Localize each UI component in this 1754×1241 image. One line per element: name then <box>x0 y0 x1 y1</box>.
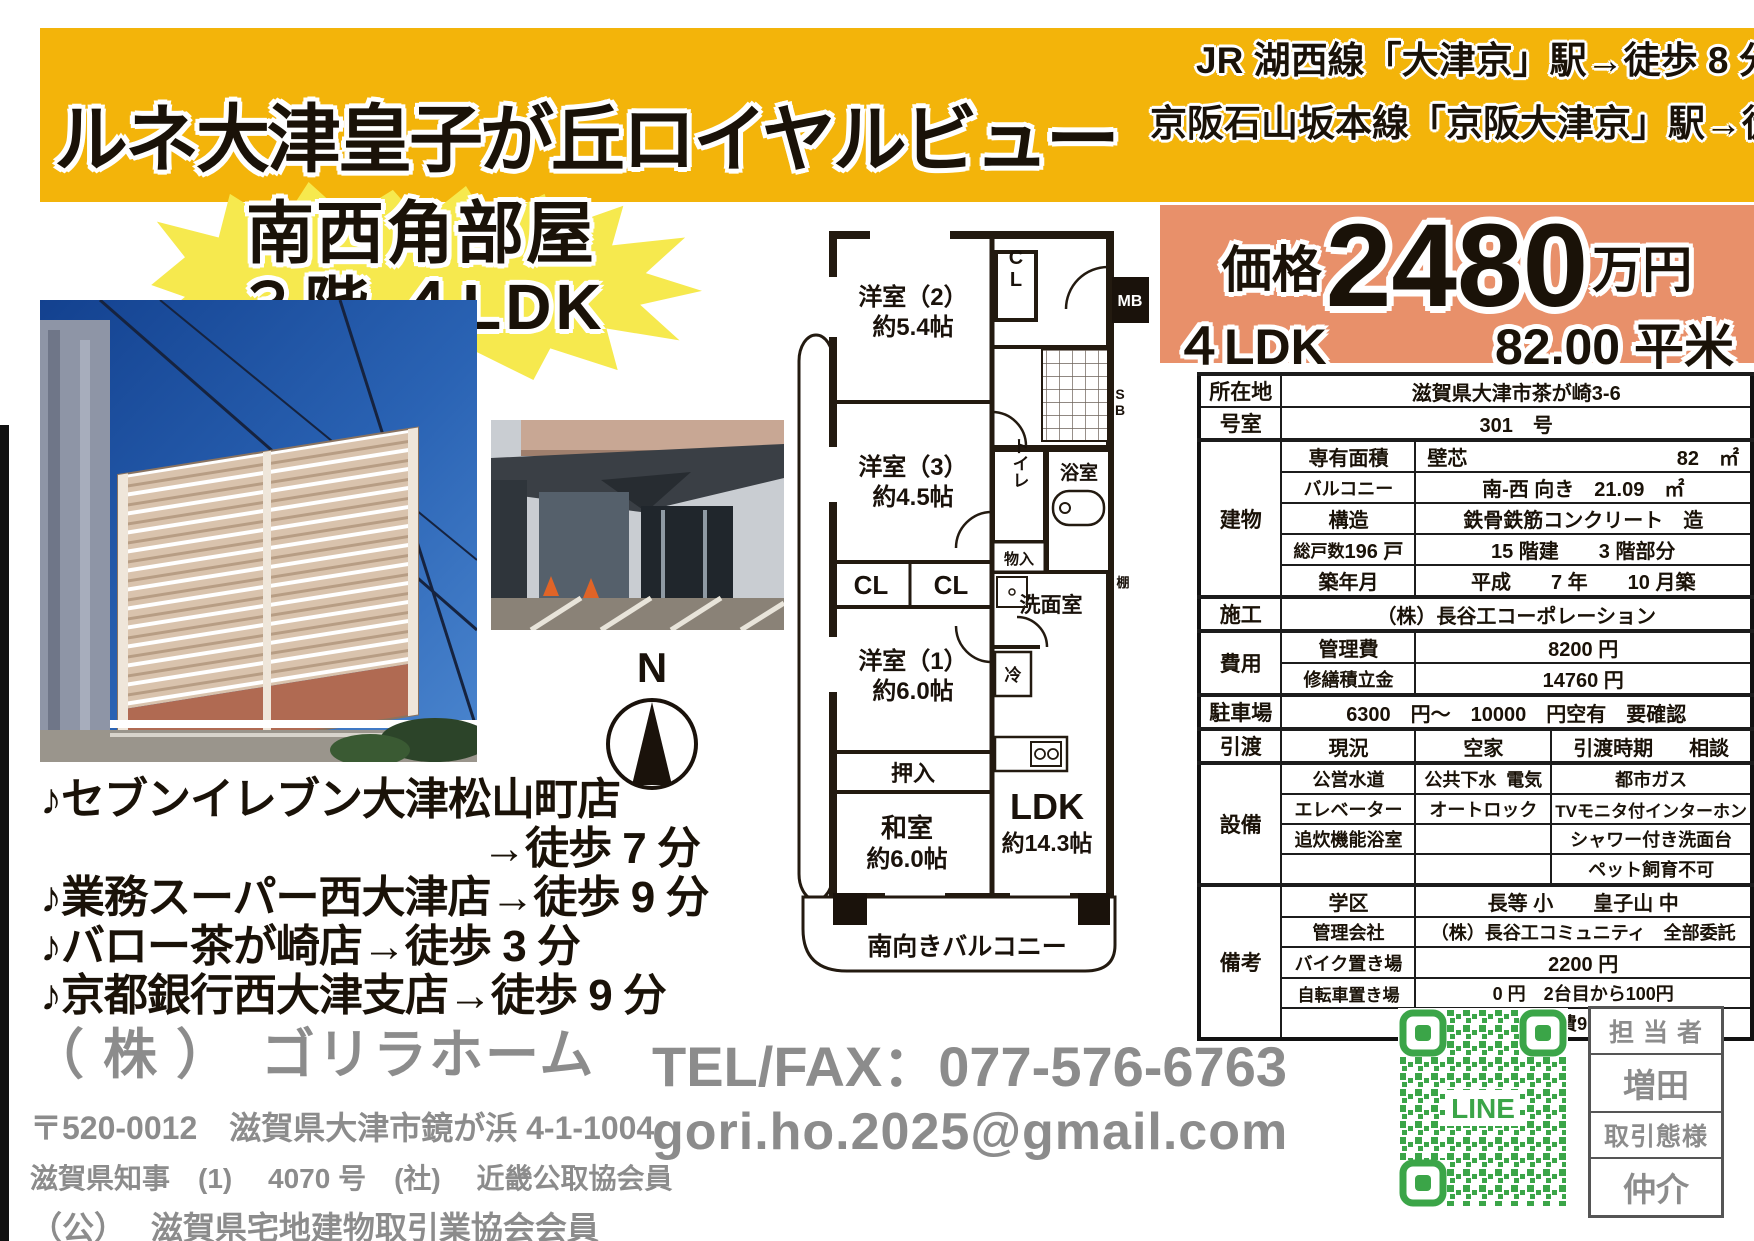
spec-sublabel: バイク置き場 <box>1281 947 1415 978</box>
access-line-jr: JR 湖西線「大津京」駅→徒歩 8 分 <box>1150 42 1754 79</box>
compass-icon: N <box>600 648 705 793</box>
amenity-item: ♪セブンイレブン大津松山町店 <box>40 778 740 822</box>
spec-value: オートロック <box>1415 794 1551 824</box>
genkan-tiles <box>1042 349 1108 441</box>
spec-value: 301 号 <box>1281 407 1752 440</box>
jiki-val: 相談 <box>1689 732 1729 761</box>
table-row: 追炊機能浴室 シャワー付き洗面台 <box>1199 824 1752 854</box>
room-size: 約4.5帖 <box>872 483 953 511</box>
page-edge-mark <box>0 425 9 1241</box>
tana-label: 棚 <box>1116 575 1129 590</box>
spec-label: 所在地 <box>1199 374 1281 407</box>
room-size: 約6.0帖 <box>866 845 947 873</box>
spec-sublabel: 総戸数196 戸 <box>1281 534 1415 565</box>
closet-top-label: CL <box>1005 247 1027 291</box>
table-row: 駐車場 6300 円～ 10000 円空有 要確認 <box>1199 695 1752 729</box>
table-row: 備考 学区 長等 小 皇子山 中 <box>1199 885 1752 917</box>
table-row: エレベーター オートロック TVモニタ付インターホン <box>1199 794 1752 824</box>
room-size: 約5.4帖 <box>872 313 953 341</box>
spec-label: 設備 <box>1199 763 1281 885</box>
email-address: gori.ho.2025@gmail.com <box>652 1102 1288 1162</box>
closet-label: CL <box>934 570 969 600</box>
spec-sublabel: 修繕積立金 <box>1281 663 1415 695</box>
building-photo-art <box>40 300 477 762</box>
senyu-val: 82 ㎡ <box>1677 442 1739 471</box>
spec-label: 引渡 <box>1199 729 1281 763</box>
compass-n-label: N <box>637 648 667 691</box>
company-block: （ 株 ） ゴリラホーム 〒520-0012 滋賀県大津市鏡が浜 4-1-100… <box>30 1010 690 1241</box>
room-size: 約6.0帖 <box>872 677 953 705</box>
spec-value: 都市ガス <box>1551 763 1752 794</box>
spec-value: エレベーター <box>1281 794 1415 824</box>
room-label: 洋室（1） <box>858 647 967 675</box>
balcony-label: 南向きバルコニー <box>867 932 1067 961</box>
header-banner: ルネ大津皇子が丘ロイヤルビュー JR 湖西線「大津京」駅→徒歩 8 分 京阪石山… <box>40 28 1754 202</box>
table-row: バイク置き場 2200 円 <box>1199 947 1752 978</box>
senyu-sub: 壁芯 <box>1427 442 1467 471</box>
area-value: 82.00 平米 <box>1495 307 1734 379</box>
price-unit: 万円 <box>1592 230 1692 302</box>
spec-label: 費用 <box>1199 631 1281 695</box>
spec-label: 建物 <box>1199 440 1281 597</box>
room-label: 洋室（3） <box>858 453 967 481</box>
line-qr-code: LINE <box>1398 1008 1568 1208</box>
spec-sublabel: 管理費 <box>1281 631 1415 663</box>
station-access: JR 湖西線「大津京」駅→徒歩 8 分 京阪石山坂本線「京阪大津京」駅→徒歩 8… <box>1150 42 1754 142</box>
setsubi-cell: 公共下水 <box>1424 766 1496 792</box>
mb-label: MB <box>1118 293 1143 310</box>
company-license2: （公） 滋賀県宅地建物取引業協会会員 <box>30 1203 690 1241</box>
table-row: 施工 （株）長谷工コーポレーション <box>1199 597 1752 631</box>
table-row: 設備 公営水道 公共下水電気 都市ガス <box>1199 763 1752 794</box>
spec-value: 6300 円～ 10000 円空有 要確認 <box>1281 695 1752 729</box>
table-row: 管理会社 （株）長谷工コミュニティ 全部委託 <box>1199 917 1752 947</box>
spec-value: 鉄骨鉄筋コンクリート 造 <box>1415 503 1752 534</box>
spec-table: 所在地 滋賀県大津市茶が崎3-6 号室 301 号 建物 専有面積 壁芯82 ㎡… <box>1197 372 1754 1041</box>
spec-sublabel: 専有面積 <box>1281 440 1415 472</box>
spec-sublabel <box>1281 1008 1415 1039</box>
spec-value: 平成 7 年 10 月築 <box>1415 565 1752 597</box>
oshiire-label: 押入 <box>891 761 935 786</box>
spec-label: 備考 <box>1199 885 1281 1039</box>
company-license1: 滋賀県知事 (1) 4070 号 (社) 近畿公取協会員 <box>30 1157 690 1197</box>
setsubi-cell: 電気 <box>1506 766 1542 792</box>
spec-value: ペット飼育不可 <box>1551 854 1752 885</box>
agent-name: 増田 <box>1591 1055 1721 1113</box>
access-line-keihan: 京阪石山坂本線「京阪大津京」駅→徒歩 8 分 <box>1150 105 1754 142</box>
amenity-item: ♪業務スーパー西大津店→徒歩 9 分 <box>40 876 740 920</box>
spec-value: シャワー付き洗面台 <box>1551 824 1752 854</box>
floorplan: CL MB SB トイレ 物入 浴室 洗面室 棚 冷 <box>695 207 1155 1002</box>
price-panel: 価格 2480 万円 ４LDK 82.00 平米 <box>1160 205 1754 363</box>
transaction-type-value: 仲介 <box>1591 1159 1721 1215</box>
soukosu-label: 総戸数 <box>1293 537 1344 562</box>
table-row: ペット飼育不可 <box>1199 854 1752 885</box>
table-row: 総戸数196 戸 15 階建 3 階部分 <box>1199 534 1752 565</box>
spec-label: 施工 <box>1199 597 1281 631</box>
spec-value: 滋賀県大津市茶が崎3-6 <box>1281 374 1752 407</box>
company-address: 〒520-0012 滋賀県大津市鏡が浜 4-1-1004 <box>30 1103 690 1149</box>
floorplan-drawing: CL MB SB トイレ 物入 浴室 洗面室 棚 冷 <box>695 207 1155 1002</box>
corridor-outline <box>799 335 833 900</box>
spec-sublabel: 構造 <box>1281 503 1415 534</box>
table-row: 自転車置き場 0 円 2台目から100円 <box>1199 978 1752 1008</box>
agent-box: 担 当 者 増田 取引態様 仲介 <box>1588 1006 1724 1218</box>
table-row: 構造 鉄骨鉄筋コンクリート 造 <box>1199 503 1752 534</box>
spec-value: TVモニタ付インターホン <box>1551 794 1752 824</box>
spec-value: 2200 円 <box>1415 947 1752 978</box>
layout-area-row: ４LDK 82.00 平米 <box>1174 307 1734 379</box>
compass: N <box>600 648 705 793</box>
spec-value <box>1415 854 1551 885</box>
table-row: 号室 301 号 <box>1199 407 1752 440</box>
spec-value: 南-西 向き 21.09 ㎡ <box>1415 472 1752 503</box>
sb-label: SB <box>1112 386 1128 418</box>
table-row: 建物 専有面積 壁芯82 ㎡ <box>1199 440 1752 472</box>
qr-art: LINE <box>1398 1008 1568 1208</box>
spec-sublabel: 学区 <box>1281 885 1415 917</box>
spec-value: 公共下水電気 <box>1415 763 1551 794</box>
spec-value <box>1281 854 1415 885</box>
spec-value: 0 円 2台目から100円 <box>1415 978 1752 1008</box>
phone-number: TEL/FAX：077-576-6763 <box>652 1022 1287 1103</box>
spec-label: 駐車場 <box>1199 695 1281 729</box>
company-name: （ 株 ） ゴリラホーム <box>30 1010 690 1089</box>
spec-value: 公営水道 <box>1281 763 1415 794</box>
table-row: 修繕積立金 14760 円 <box>1199 663 1752 695</box>
line-label: LINE <box>1451 1093 1515 1124</box>
spec-value: 長等 小 皇子山 中 <box>1415 885 1752 917</box>
soukosu-val: 196 戸 <box>1344 535 1403 564</box>
layout-value: ４LDK <box>1174 307 1327 379</box>
amenities-list: ♪セブンイレブン大津松山町店 →徒歩 7 分 ♪業務スーパー西大津店→徒歩 9 … <box>40 778 740 1023</box>
spec-value <box>1415 824 1551 854</box>
agent-label: 担 当 者 <box>1591 1009 1721 1055</box>
table-row: 引渡 現況 空家 引渡時期相談 <box>1199 729 1752 763</box>
spec-value: （株）長谷工コミュニティ 全部委託 <box>1415 917 1752 947</box>
transaction-type-label: 取引態様 <box>1591 1113 1721 1159</box>
room-label: 和室 <box>881 813 933 843</box>
real-estate-flyer: ルネ大津皇子が丘ロイヤルビュー JR 湖西線「大津京」駅→徒歩 8 分 京阪石山… <box>0 0 1754 1241</box>
table-row: 費用 管理費 8200 円 <box>1199 631 1752 663</box>
table-row: 所在地 滋賀県大津市茶が崎3-6 <box>1199 374 1752 407</box>
table-row: バルコニー 南-西 向き 21.09 ㎡ <box>1199 472 1752 503</box>
spec-sublabel: 現況 <box>1281 729 1415 763</box>
highlight-line1: 南西角部屋 <box>140 196 702 272</box>
spec-value: 引渡時期相談 <box>1551 729 1752 763</box>
amenity-item: →徒歩 7 分 <box>40 827 740 871</box>
jiki-label: 引渡時期 <box>1573 732 1653 761</box>
spec-value: 14760 円 <box>1415 663 1752 695</box>
spec-value: 15 階建 3 階部分 <box>1415 534 1752 565</box>
spec-sublabel: 管理会社 <box>1281 917 1415 947</box>
spec-value: 8200 円 <box>1415 631 1752 663</box>
property-title: ルネ大津皇子が丘ロイヤルビュー <box>54 80 1117 187</box>
closet-label: CL <box>854 570 889 600</box>
spec-sublabel: 自転車置き場 <box>1281 978 1415 1008</box>
spec-value: 追炊機能浴室 <box>1281 824 1415 854</box>
fridge-label: 冷 <box>1005 665 1022 685</box>
spec-sublabel: 築年月 <box>1281 565 1415 597</box>
bath-label: 浴室 <box>1060 461 1098 484</box>
building-photo <box>40 300 477 762</box>
amenity-item: ♪バロー茶が崎店→徒歩 3 分 <box>40 925 740 969</box>
spec-value: 空家 <box>1415 729 1551 763</box>
price-label: 価格 <box>1222 230 1322 302</box>
room-size: 約14.3帖 <box>1002 830 1093 856</box>
room-label: 洋室（2） <box>858 283 967 311</box>
spec-label: 号室 <box>1199 407 1281 440</box>
monoire-label: 物入 <box>1004 550 1034 568</box>
spec-value: 壁芯82 ㎡ <box>1415 440 1752 472</box>
senmen-label: 洗面室 <box>1020 593 1083 617</box>
table-row: 築年月 平成 7 年 10 月築 <box>1199 565 1752 597</box>
spec-value: （株）長谷工コーポレーション <box>1281 597 1752 631</box>
spec-sublabel: バルコニー <box>1281 472 1415 503</box>
room-label: LDK <box>1010 786 1084 827</box>
